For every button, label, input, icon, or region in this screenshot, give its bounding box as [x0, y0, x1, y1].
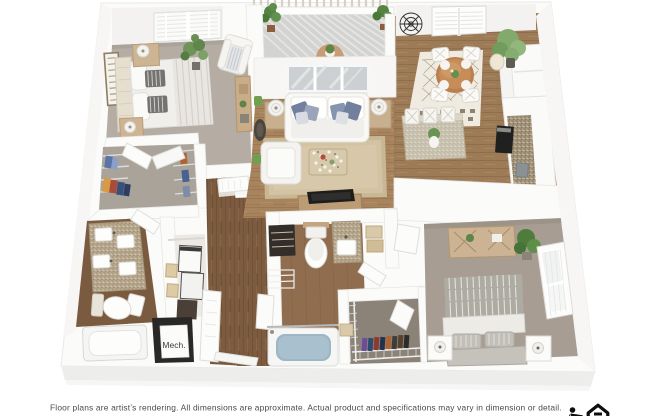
svg-text:Mech.: Mech. — [162, 340, 185, 350]
svg-text:Floor plans are artist’s rende: Floor plans are artist’s rendering. All … — [50, 403, 562, 413]
